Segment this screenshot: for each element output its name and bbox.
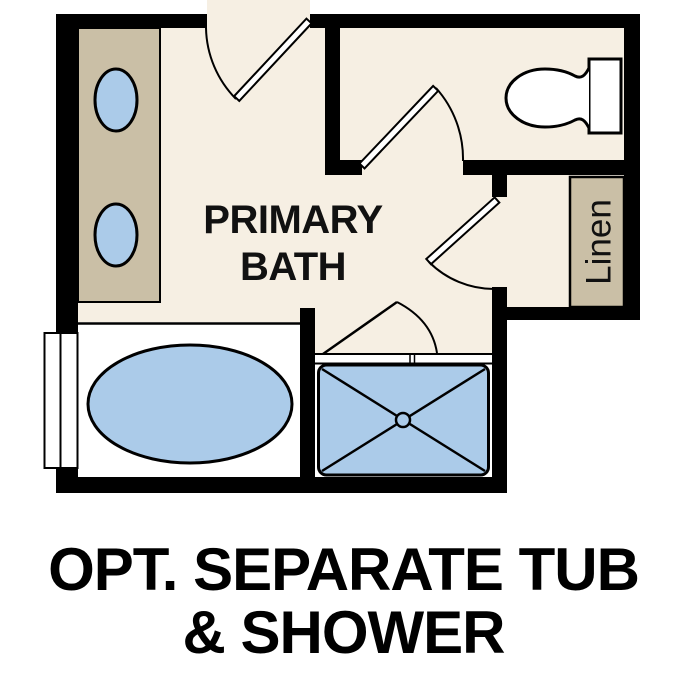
window: [45, 333, 78, 468]
caption-line2: & SHOWER: [0, 601, 687, 664]
wall-tub-shower-divider: [300, 308, 315, 477]
linen-label: Linen: [580, 199, 619, 285]
room-label-line1: PRIMARY: [118, 197, 468, 244]
tub-icon: [88, 345, 292, 463]
wall-wc-bottom: [463, 160, 624, 175]
floor-entry-opening: [207, 0, 310, 30]
plan-caption: OPT. SEPARATE TUB & SHOWER: [0, 538, 687, 664]
wall-right: [624, 14, 640, 320]
wall-top-right: [310, 14, 640, 28]
room-label-primary-bath: PRIMARY BATH: [118, 197, 468, 291]
floor-plan-image: Linen: [0, 0, 687, 687]
wall-wc-left: [325, 28, 340, 160]
toilet-tank: [589, 59, 621, 133]
room-label-line2: BATH: [118, 244, 468, 291]
caption-line1: OPT. SEPARATE TUB: [0, 538, 687, 601]
wall-wc-stub: [325, 160, 362, 175]
tub-alcove: [78, 322, 302, 477]
wall-linen-bottom: [492, 307, 640, 320]
linen-closet: Linen: [570, 177, 624, 307]
wall-bottom: [56, 477, 507, 493]
sink-icon-1: [95, 69, 137, 131]
shower-stall: [315, 353, 492, 477]
wall-linen-stub: [492, 175, 507, 197]
shower-drain-icon: [396, 413, 410, 427]
wall-top-left: [56, 14, 207, 28]
